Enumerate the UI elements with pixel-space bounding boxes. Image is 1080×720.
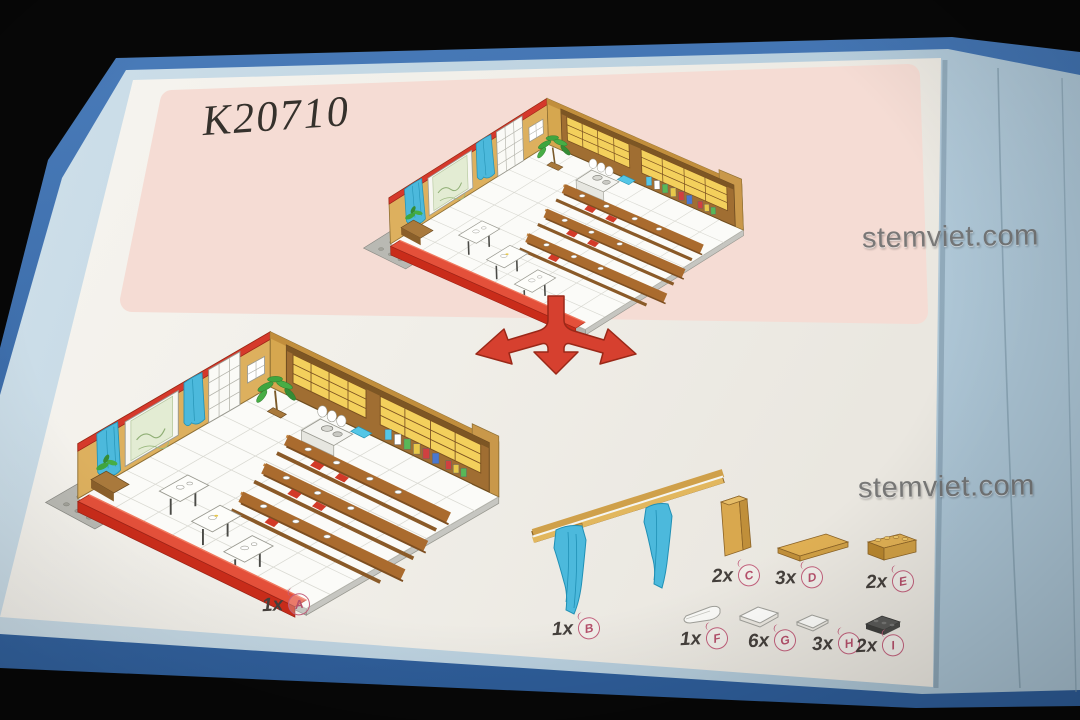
- part-badge-a: A: [286, 591, 312, 617]
- part-badge-e: E: [890, 568, 916, 594]
- part-qty: 1x: [551, 618, 573, 641]
- watermark: stemviet.com: [858, 469, 1035, 505]
- part-label-g: 6x G: [747, 629, 796, 653]
- part-qty: 2x: [711, 565, 733, 588]
- part-badge-c: C: [736, 562, 762, 588]
- part-qty: 3x: [811, 633, 833, 656]
- watermark: stemviet.com: [862, 219, 1039, 255]
- part-label-h: 3x H: [811, 632, 860, 656]
- part-qty: 1x: [261, 594, 283, 617]
- part-badge-g: G: [772, 627, 798, 653]
- part-qty: 6x: [747, 630, 769, 653]
- part-qty: 3x: [774, 567, 796, 590]
- part-label-d: 3x D: [774, 566, 823, 590]
- part-c-graphic: [721, 496, 751, 556]
- set-number-title: K20710: [200, 87, 351, 146]
- part-qty: 1x: [679, 628, 701, 651]
- part-badge-i: I: [880, 632, 906, 658]
- booklet-photo: K20710 stemviet.com stemviet.com 1x A 1x…: [0, 0, 1080, 720]
- part-qty: 2x: [855, 635, 877, 658]
- part-badge-d: D: [799, 564, 825, 590]
- part-label-c: 2x C: [711, 564, 760, 588]
- part-label-b: 1x B: [551, 617, 600, 641]
- booklet-graphics: [0, 0, 1080, 720]
- part-label-e: 2x E: [865, 570, 914, 594]
- part-label-a: 1x A: [261, 593, 310, 617]
- part-badge-b: B: [576, 615, 602, 641]
- part-label-f: 1x F: [679, 627, 728, 651]
- part-label-i: 2x I: [855, 634, 904, 658]
- part-qty: 2x: [865, 571, 887, 594]
- part-badge-f: F: [704, 625, 730, 651]
